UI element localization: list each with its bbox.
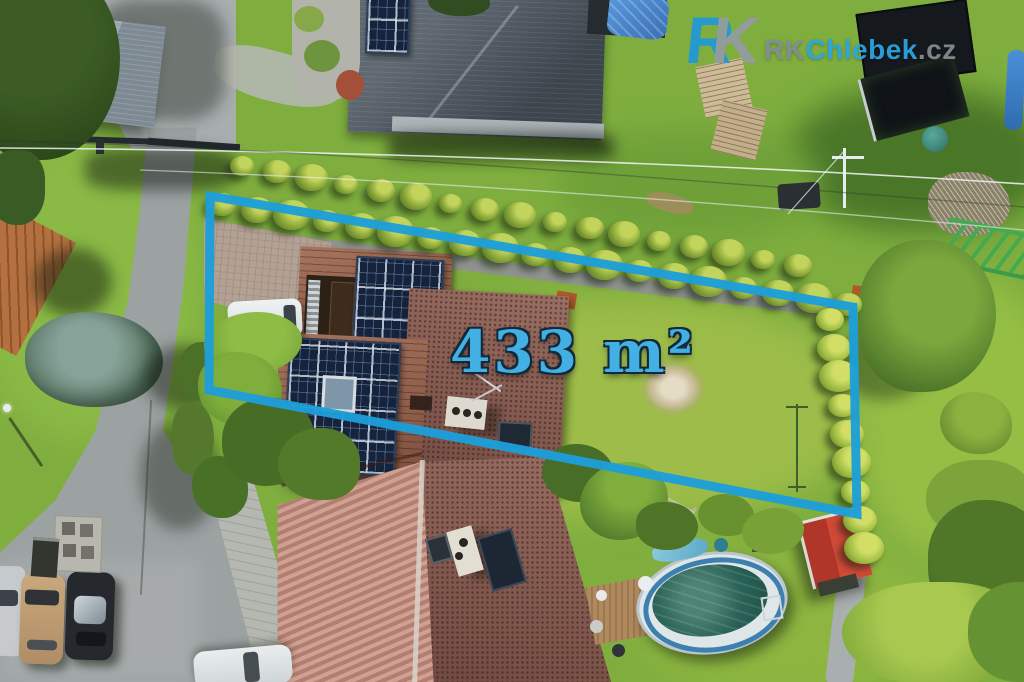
hedge-cone: [482, 233, 519, 263]
hedge-cone: [832, 446, 871, 478]
hedge-cone: [658, 263, 690, 289]
watermark-logo-k: K: [709, 10, 763, 70]
hedge-cone: [817, 334, 851, 362]
watermark-prefix: RK: [764, 34, 805, 65]
hedge-cone: [295, 164, 327, 190]
hedge-cone: [784, 254, 812, 277]
hedge-cone: [334, 175, 358, 195]
watermark-text: RKChlebek.cz: [764, 34, 957, 66]
watermark-logo: R K: [683, 10, 768, 72]
area-label: 433 m²: [450, 318, 696, 386]
hedge-cone: [730, 277, 757, 299]
hedge-cone: [841, 480, 870, 504]
hedge-cone: [647, 231, 671, 251]
hedge-cone: [830, 420, 864, 448]
hedge-cone: [576, 217, 604, 240]
hedge-cone: [367, 179, 395, 202]
hedge-cone: [844, 532, 883, 564]
hedge-cone: [626, 260, 653, 282]
hedge-cone: [586, 250, 623, 280]
hedge-cone: [762, 280, 794, 306]
hedge-cone: [417, 227, 444, 249]
hedge-cone: [554, 247, 586, 273]
watermark: R K RKChlebek.cz: [686, 10, 957, 72]
hedge-cone: [608, 221, 640, 247]
hedge-cone: [439, 194, 463, 214]
hedge-cone: [313, 210, 340, 232]
hedge-cone: [241, 197, 273, 223]
hedge-cone: [273, 200, 310, 230]
hedge-cone: [843, 506, 877, 534]
hedge-cone: [751, 250, 775, 270]
hedge-cone: [712, 239, 744, 265]
watermark-brand: Chlebek: [805, 34, 917, 65]
hedge-cone: [828, 394, 857, 418]
hedge-cone: [521, 243, 548, 265]
hedge-cone: [230, 156, 254, 176]
watermark-suffix: .cz: [918, 34, 957, 65]
hedge-cone: [816, 308, 845, 332]
hedge-cone: [680, 235, 708, 258]
hedge-cone: [345, 213, 377, 239]
hedge-cone: [400, 183, 432, 209]
hedge-cone: [449, 230, 481, 256]
aerial-photo: 433 m² R K RKChlebek.cz: [0, 0, 1024, 682]
hedge-cone: [263, 160, 291, 183]
hedge-cone: [543, 212, 567, 232]
hedge-cone: [208, 193, 235, 215]
hedge-cone: [690, 266, 727, 296]
hedge-cone: [504, 202, 536, 228]
hedge-cone: [819, 360, 858, 392]
hedge-cone: [377, 216, 414, 246]
hedge-cone: [471, 198, 499, 221]
